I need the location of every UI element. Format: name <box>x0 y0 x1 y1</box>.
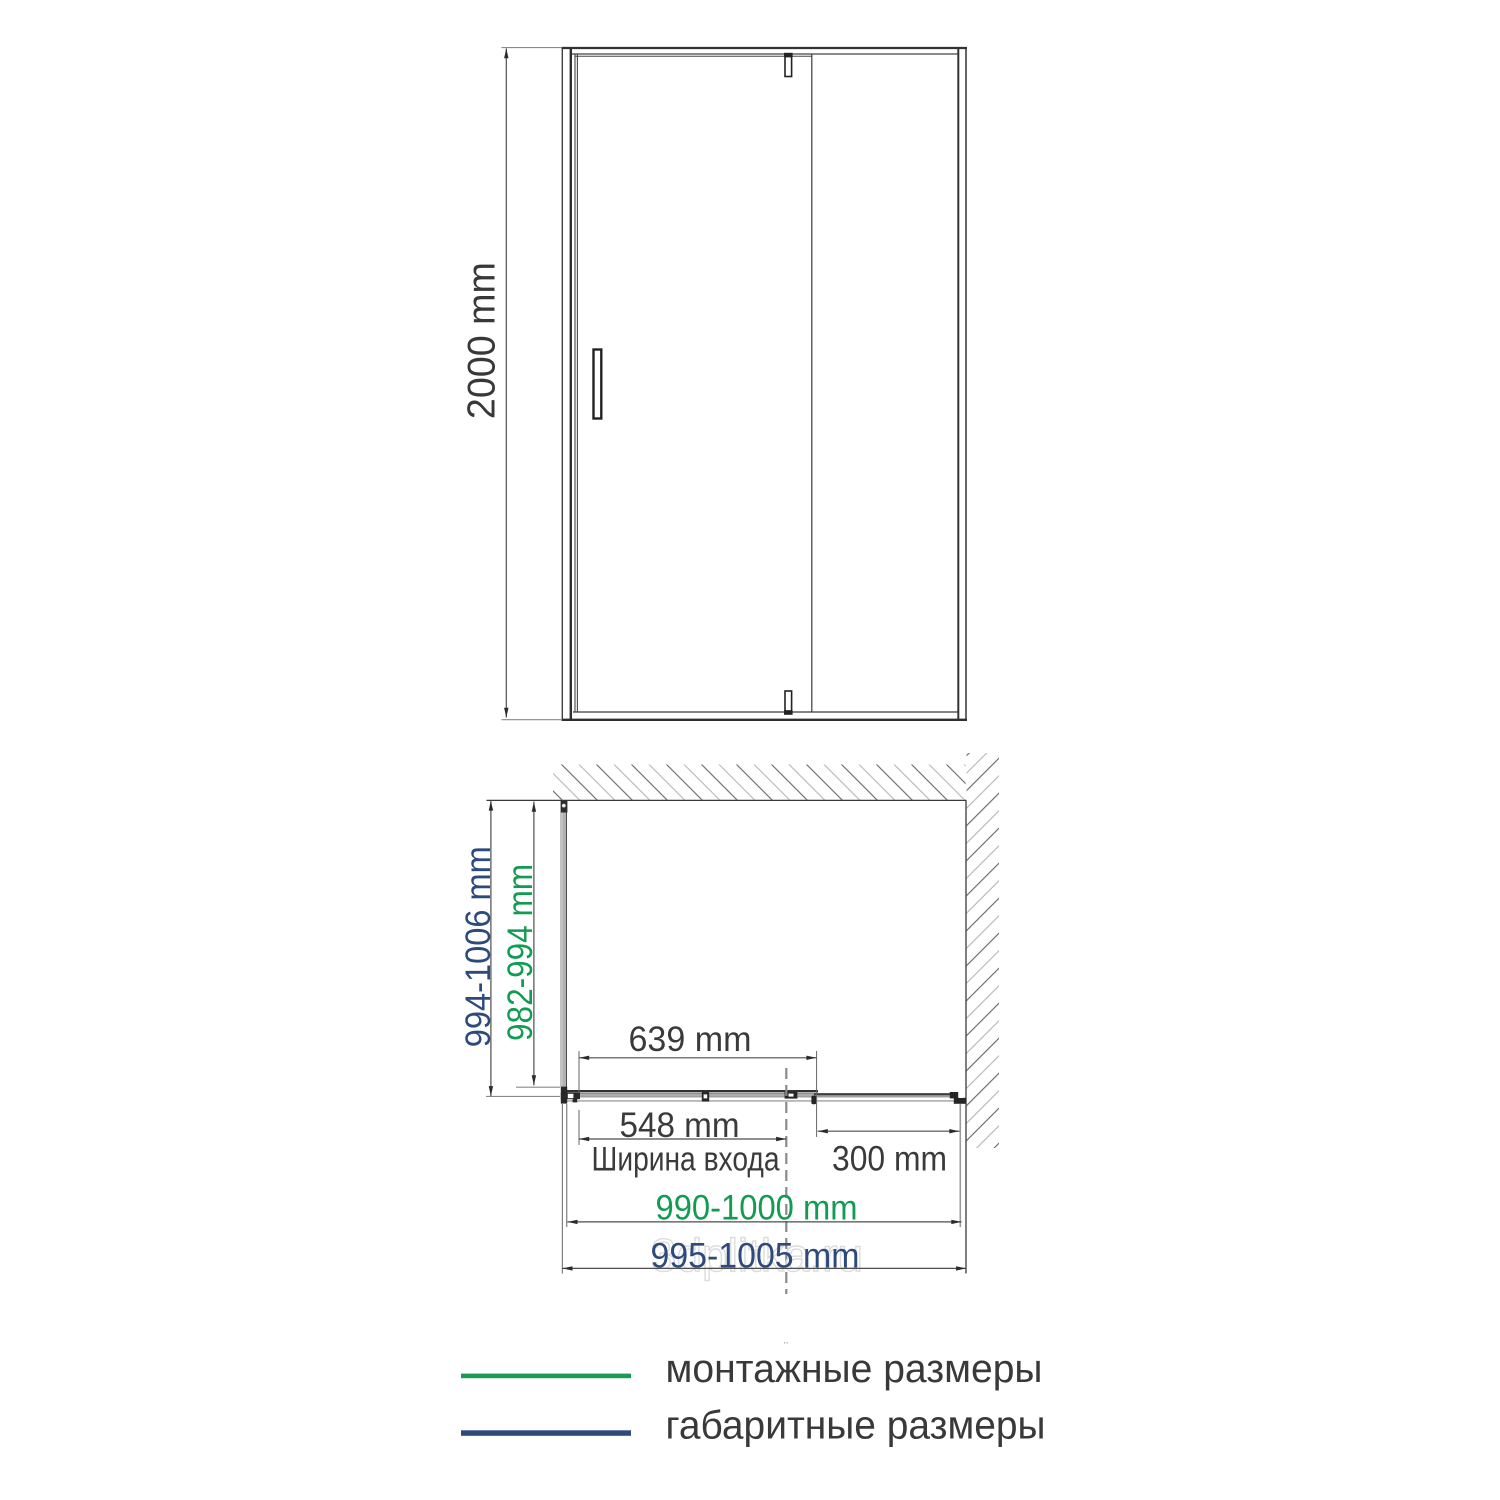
svg-text:монтажные размеры: монтажные размеры <box>666 1347 1043 1391</box>
svg-text:990-1000 mm: 990-1000 mm <box>656 1189 858 1228</box>
svg-text:300 mm: 300 mm <box>832 1140 947 1179</box>
svg-text:994-1006 mm: 994-1006 mm <box>459 846 498 1047</box>
svg-text:639 mm: 639 mm <box>629 1020 752 1059</box>
svg-text:995-1005 mm: 995-1005 mm <box>651 1237 860 1276</box>
svg-text:982-994 mm: 982-994 mm <box>501 864 540 1041</box>
svg-text:2000 mm: 2000 mm <box>461 262 504 419</box>
svg-text:габаритные размеры: габаритные размеры <box>666 1404 1046 1448</box>
svg-text:Ширина входа: Ширина входа <box>592 1141 780 1179</box>
svg-text:548 mm: 548 mm <box>620 1106 740 1145</box>
